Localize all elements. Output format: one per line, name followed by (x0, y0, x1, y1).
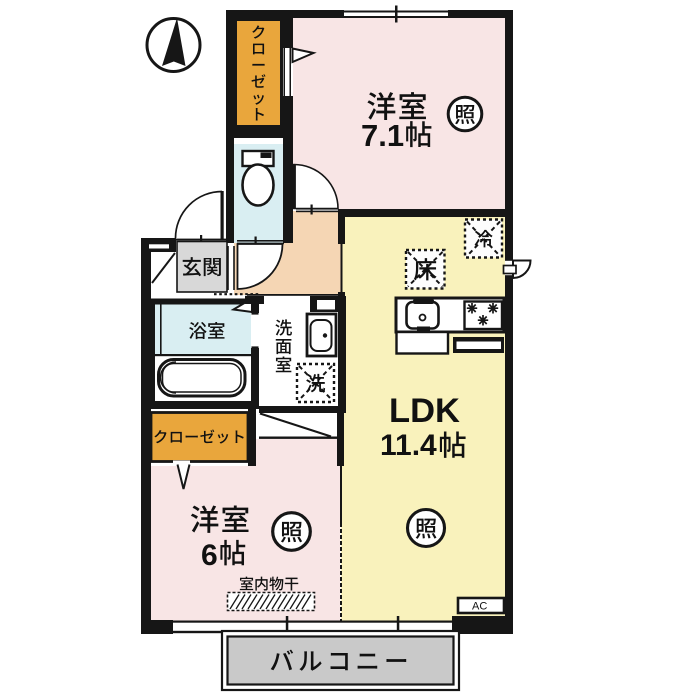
svg-text:LDK: LDK (389, 392, 460, 430)
svg-text:11.4: 11.4 (380, 429, 437, 462)
svg-text:6: 6 (201, 539, 218, 572)
svg-text:7.1: 7.1 (361, 118, 404, 153)
svg-text:AC: AC (472, 601, 487, 613)
